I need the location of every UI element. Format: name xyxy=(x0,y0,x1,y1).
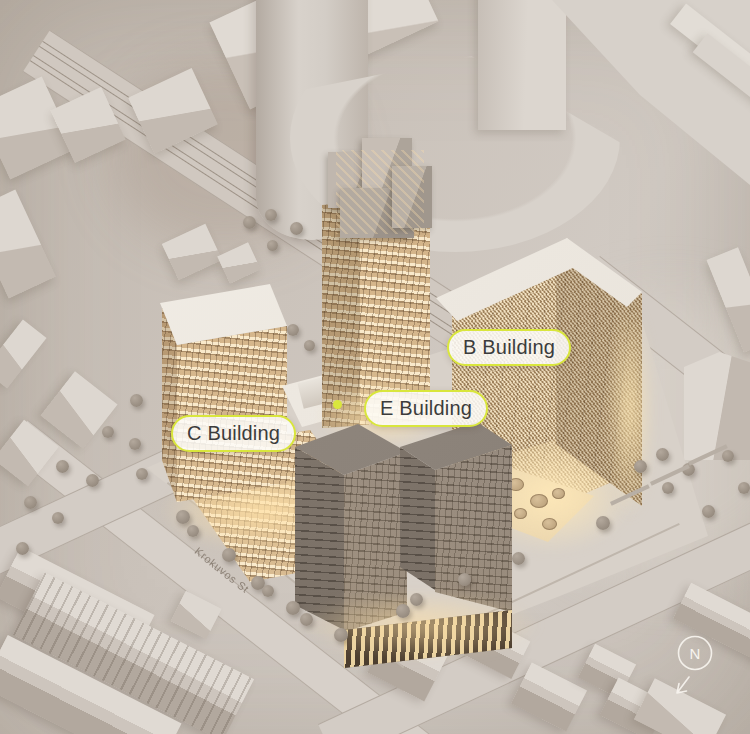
tree xyxy=(410,593,423,606)
tree xyxy=(262,585,274,597)
tree xyxy=(286,601,300,615)
e-building-marker-dot xyxy=(333,400,342,409)
tree xyxy=(16,542,29,555)
tree xyxy=(52,512,64,524)
courtyard-planter xyxy=(552,488,565,499)
tree xyxy=(243,216,256,229)
tree xyxy=(24,496,37,509)
tree xyxy=(702,505,715,518)
tree xyxy=(722,450,734,462)
tree xyxy=(396,604,410,618)
site-plan-3d-view: Krokuvos St B Building E Building C Buil… xyxy=(0,0,750,734)
context-building xyxy=(0,190,56,299)
tree xyxy=(304,340,315,351)
tree xyxy=(662,482,674,494)
tree xyxy=(458,573,471,586)
tree xyxy=(334,628,348,642)
compass-arrow-icon xyxy=(677,677,689,693)
courtyard-planter xyxy=(530,494,548,508)
tree xyxy=(187,525,199,537)
compass-north-indicator: N xyxy=(663,621,727,705)
tree xyxy=(129,438,141,450)
b-building-label-pill[interactable]: B Building xyxy=(447,329,571,366)
tree xyxy=(300,613,313,626)
c-building-label-pill[interactable]: C Building xyxy=(171,415,296,452)
e-building-label-pill[interactable]: E Building xyxy=(364,390,488,427)
tree xyxy=(86,474,99,487)
tree xyxy=(287,324,299,336)
tree xyxy=(634,460,647,473)
tree xyxy=(290,222,303,235)
courtyard-planter xyxy=(542,518,557,530)
tree xyxy=(265,209,277,221)
tree xyxy=(738,482,750,494)
context-building xyxy=(684,352,750,460)
building-label-text: E Building xyxy=(380,397,472,420)
tree xyxy=(136,468,148,480)
tree xyxy=(267,240,278,251)
courtyard-planter xyxy=(514,508,527,519)
tree xyxy=(176,510,190,524)
context-building xyxy=(0,320,47,389)
tree xyxy=(656,448,669,461)
tree xyxy=(102,426,114,438)
tree xyxy=(512,552,525,565)
context-building-tall xyxy=(478,0,566,130)
tree xyxy=(222,548,236,562)
building-label-text: C Building xyxy=(187,422,280,445)
tree xyxy=(56,460,69,473)
compass-letter: N xyxy=(690,645,701,662)
building-label-text: B Building xyxy=(463,336,555,359)
tree xyxy=(130,394,143,407)
tower-crown-lit-flecks xyxy=(336,150,424,234)
tree xyxy=(596,516,610,530)
